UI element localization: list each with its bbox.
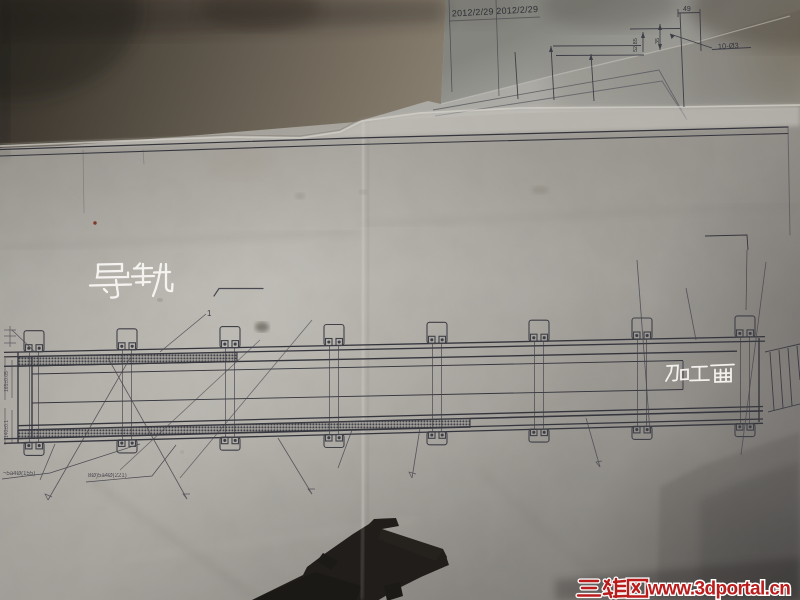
svg-text:49: 49 — [683, 6, 691, 13]
svg-text:52.85: 52.85 — [633, 38, 639, 52]
svg-text:35: 35 — [655, 38, 661, 44]
svg-text:1: 1 — [207, 309, 212, 318]
svg-text:www.3dportal.cn: www.3dportal.cn — [647, 579, 790, 600]
svg-text:10-Ø3: 10-Ø3 — [718, 41, 739, 51]
svg-text:8Ø)5a4Ø(221): 8Ø)5a4Ø(221) — [88, 473, 127, 479]
svg-text:¬5a4Ø(155): ¬5a4Ø(155) — [3, 471, 35, 477]
svg-text:140±0.1: 140±0.1 — [4, 420, 10, 438]
svg-text:165±0.05: 165±0.05 — [4, 371, 10, 392]
